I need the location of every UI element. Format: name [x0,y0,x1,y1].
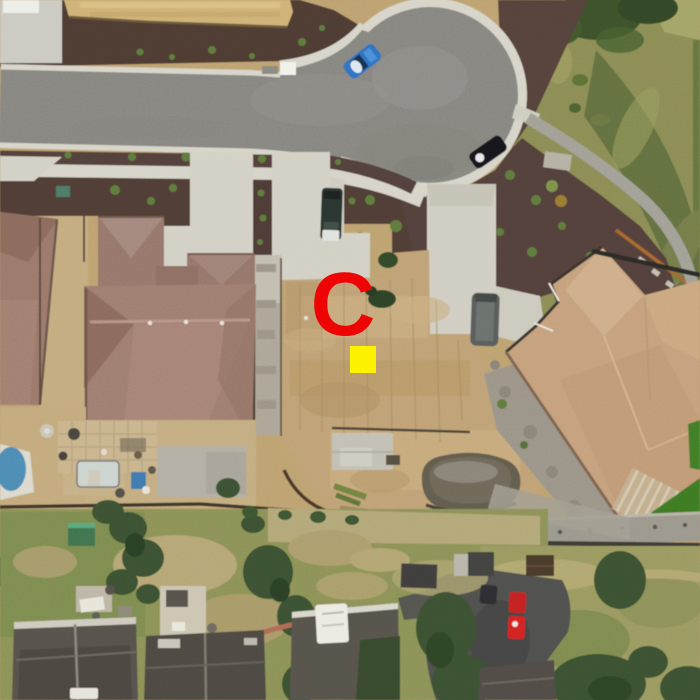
svg-text:C: C [311,255,376,355]
